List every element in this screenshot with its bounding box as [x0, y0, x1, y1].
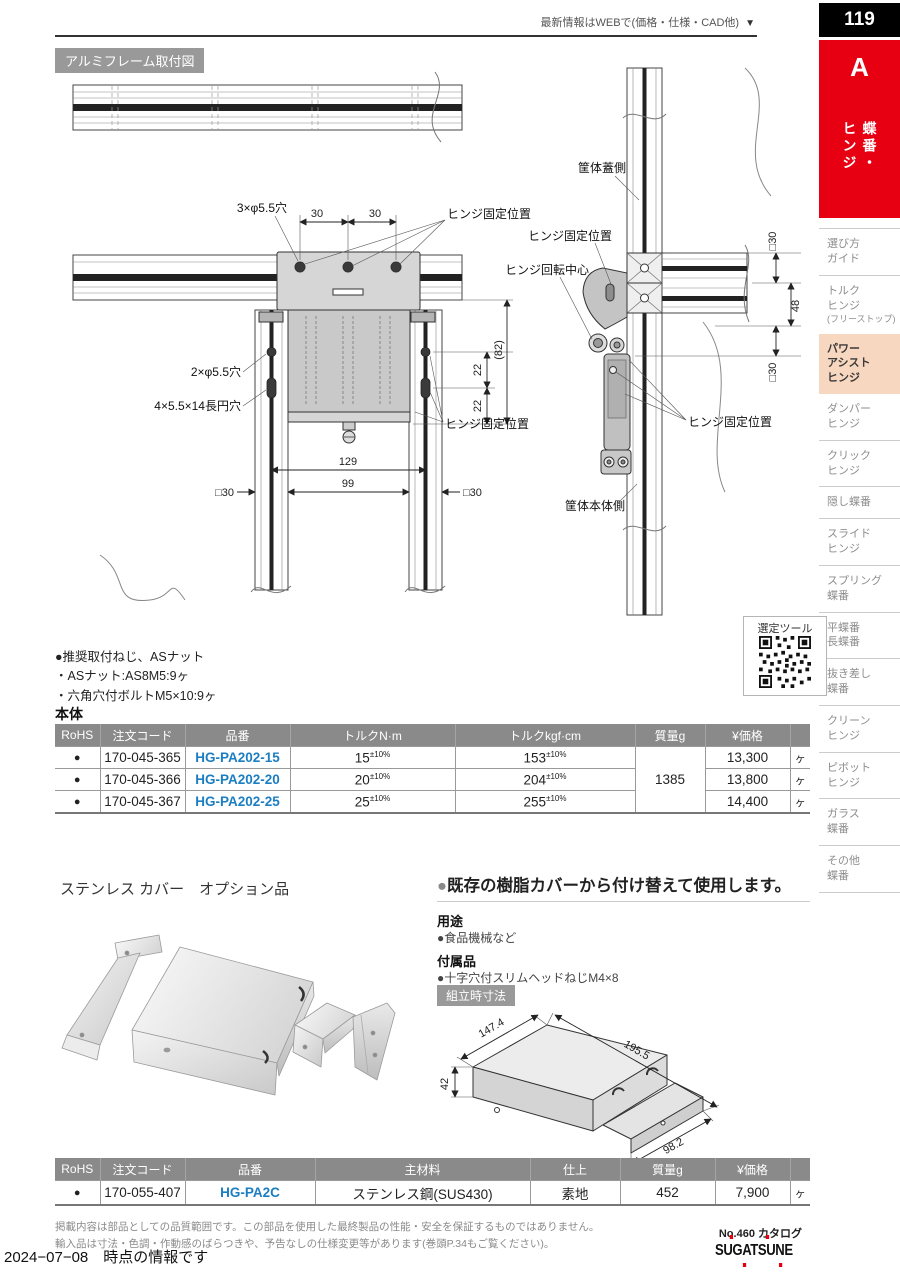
- table-row: ● 170-045-365 HG-PA202-15 15±10% 153±10%…: [55, 747, 810, 769]
- section-letter: A: [819, 52, 900, 83]
- notes-line-1: ・ASナット:AS8M5:9ヶ: [55, 667, 217, 686]
- dim-22-upper: 22: [472, 364, 484, 376]
- accessory-value: ●十字穴付スリムヘッドねじM4×8: [437, 969, 619, 986]
- dim-30-square-top: □30: [767, 232, 779, 251]
- header-rule: [55, 35, 757, 37]
- web-info-note: 最新情報はWEBで(価格・仕様・CAD他)▼: [55, 14, 755, 30]
- label-hinge-fix-top: ヒンジ固定位置: [447, 206, 531, 221]
- triangle-down-icon: ▼: [745, 18, 755, 29]
- order-code: 170-055-407: [100, 1181, 185, 1206]
- part-number-link[interactable]: HG-PA202-15: [185, 747, 290, 769]
- material-value: ステンレス鋼(SUS430): [315, 1181, 530, 1206]
- table-row: ● 170-055-407 HG-PA2C ステンレス鋼(SUS430) 素地 …: [55, 1181, 810, 1206]
- order-code: 170-045-367: [100, 791, 185, 814]
- dim-48: 48: [790, 300, 802, 312]
- sidebar-item-pivot-hinge[interactable]: ピボット ヒンジ: [819, 752, 900, 799]
- col-finish: 仕上: [530, 1158, 620, 1181]
- finish-value: 素地: [530, 1181, 620, 1206]
- sidebar-item-click-hinge[interactable]: クリック ヒンジ: [819, 440, 900, 487]
- mounting-notes: ●推奨取付ねじ、ASナット ・ASナット:AS8M5:9ヶ ・六角穴付ボルトM5…: [55, 648, 217, 706]
- col-unit: [790, 1158, 810, 1181]
- headline-rule: [437, 901, 810, 902]
- dim-42: 42: [439, 1078, 451, 1090]
- brand-block: No.460 カタログSUGATSUNE: [660, 1224, 810, 1260]
- selector-tool-label: 選定ツール: [744, 620, 826, 636]
- unit-value: ヶ: [790, 791, 810, 814]
- use-label: 用途: [437, 911, 463, 930]
- unit-value: ヶ: [790, 1181, 810, 1206]
- col-torque-kgf: トルクkgf·cm: [455, 724, 635, 747]
- part-number-link[interactable]: HG-PA2C: [185, 1181, 315, 1206]
- col-order-code: 注文コード: [100, 724, 185, 747]
- rohs-dot: ●: [55, 791, 100, 814]
- torque-kgf-value: 255±10%: [455, 791, 635, 814]
- torque-kgf-value: 204±10%: [455, 769, 635, 791]
- col-order-code: 注文コード: [100, 1158, 185, 1181]
- category-sidebar: 選び方 ガイド トルク ヒンジ(フリーストップ) パワー アシスト ヒンジ ダン…: [819, 228, 900, 893]
- col-material: 主材料: [315, 1158, 530, 1181]
- torque-nm-value: 25±10%: [290, 791, 455, 814]
- col-part-no: 品番: [185, 1158, 315, 1181]
- mass-value: 1385: [635, 747, 705, 814]
- cover-section-title: ステンレス カバー オプション品: [60, 878, 289, 899]
- label-oblong-hole: 4×5.5×14長円穴: [154, 398, 241, 413]
- col-rohs: RoHS: [55, 724, 100, 747]
- mounting-diagram: 30 30 3×φ5.5穴 ヒンジ固定位置 22 22 (82) 2×φ5.5穴…: [55, 60, 810, 635]
- section-tab-hinge[interactable]: A 蝶番・ ヒンジ: [819, 40, 900, 218]
- torque-kgf-value: 153±10%: [455, 747, 635, 769]
- assembled-dims-drawing: 147.4 195.5 42 98.2: [435, 1005, 725, 1160]
- dim-82: (82): [493, 340, 505, 360]
- table-header-row: RoHS 注文コード 品番 主材料 仕上 質量g ¥価格: [55, 1158, 810, 1181]
- dim-98-2: 98.2: [661, 1136, 686, 1157]
- dim-30-square-right: □30: [463, 487, 482, 499]
- col-mass: 質量g: [620, 1158, 715, 1181]
- part-number-link[interactable]: HG-PA202-20: [185, 769, 290, 791]
- dim-129: 129: [339, 456, 357, 468]
- col-torque-nm: トルクN·m: [290, 724, 455, 747]
- sidebar-item-flat-long-hinge[interactable]: 平蝶番 長蝶番: [819, 612, 900, 659]
- cover-product-image: [55, 915, 425, 1150]
- dim-30-square-left: □30: [215, 487, 234, 499]
- label-lid-side: 筐体蓋側: [578, 160, 626, 175]
- col-rohs: RoHS: [55, 1158, 100, 1181]
- label-2-holes: 2×φ5.5穴: [191, 364, 241, 379]
- col-part-no: 品番: [185, 724, 290, 747]
- main-table-title: 本体: [55, 704, 83, 724]
- price-value: 7,900: [715, 1181, 790, 1206]
- unit-value: ヶ: [790, 747, 810, 769]
- sidebar-item-glass-hinge[interactable]: ガラス 蝶番: [819, 798, 900, 845]
- sidebar-item-lift-off-hinge[interactable]: 抜き差し 蝶番: [819, 658, 900, 705]
- label-hinge-fix-lower: ヒンジ固定位置: [688, 414, 772, 429]
- dim-99: 99: [342, 478, 354, 490]
- mass-value: 452: [620, 1181, 715, 1206]
- order-code: 170-045-366: [100, 769, 185, 791]
- col-mass: 質量g: [635, 724, 705, 747]
- price-value: 13,800: [705, 769, 790, 791]
- torque-nm-value: 15±10%: [290, 747, 455, 769]
- selector-tool-box[interactable]: 選定ツール: [743, 616, 827, 696]
- sidebar-item-guide[interactable]: 選び方 ガイド: [819, 228, 900, 275]
- sidebar-item-spring-hinge[interactable]: スプリング 蝶番: [819, 565, 900, 612]
- main-product-table: RoHS 注文コード 品番 トルクN·m トルクkgf·cm 質量g ¥価格 ●…: [55, 724, 810, 814]
- sidebar-item-slide-hinge[interactable]: スライド ヒンジ: [819, 518, 900, 565]
- unit-value: ヶ: [790, 769, 810, 791]
- dim-147-4: 147.4: [477, 1016, 507, 1040]
- rohs-dot: ●: [55, 747, 100, 769]
- sidebar-item-other-hinge[interactable]: その他 蝶番: [819, 845, 900, 892]
- sugatsune-logo: SUGATSUNE: [715, 1242, 793, 1260]
- cover-headline: ●既存の樹脂カバーから付け替えて使用します。: [437, 872, 791, 896]
- notes-title: ●推奨取付ねじ、ASナット: [55, 648, 217, 667]
- rohs-dot: ●: [55, 769, 100, 791]
- col-unit: [790, 724, 810, 747]
- assembled-dims-label: 組立時寸法: [437, 985, 515, 1006]
- col-price: ¥価格: [715, 1158, 790, 1181]
- label-hinge-fix-side: ヒンジ固定位置: [445, 416, 529, 431]
- page-number: 119: [819, 3, 900, 37]
- rohs-dot: ●: [55, 1181, 100, 1206]
- qr-code-icon: [759, 636, 811, 688]
- dim-22-lower: 22: [472, 400, 484, 412]
- disclaimer-1: 掲載内容は部品としての品質範囲です。この部品を使用した最終製品の性能・安全を保証…: [55, 1219, 599, 1234]
- order-code: 170-045-365: [100, 747, 185, 769]
- dim-30-square-bottom: □30: [767, 363, 779, 382]
- sidebar-item-damper-hinge[interactable]: ダンパー ヒンジ: [819, 394, 900, 440]
- label-3-holes: 3×φ5.5穴: [237, 200, 287, 215]
- price-value: 13,300: [705, 747, 790, 769]
- sidebar-item-concealed-hinge[interactable]: 隠し蝶番: [819, 486, 900, 518]
- sidebar-item-torque-hinge[interactable]: トルク ヒンジ(フリーストップ): [819, 275, 900, 334]
- sidebar-item-power-assist-hinge[interactable]: パワー アシスト ヒンジ: [819, 334, 900, 395]
- use-value: ●食品機械など: [437, 929, 516, 946]
- torque-nm-value: 20±10%: [290, 769, 455, 791]
- label-body-side: 筐体本体側: [565, 498, 625, 513]
- label-hinge-fix-upper: ヒンジ固定位置: [528, 228, 612, 243]
- dim-30-left: 30: [311, 208, 323, 220]
- date-note: 2024−07−08 時点の情報です: [4, 1246, 208, 1267]
- accessory-label: 付属品: [437, 951, 476, 970]
- cover-product-table: RoHS 注文コード 品番 主材料 仕上 質量g ¥価格 ● 170-055-4…: [55, 1158, 810, 1206]
- sidebar-item-clean-hinge[interactable]: クリーン ヒンジ: [819, 705, 900, 752]
- part-number-link[interactable]: HG-PA202-25: [185, 791, 290, 814]
- col-price: ¥価格: [705, 724, 790, 747]
- table-header-row: RoHS 注文コード 品番 トルクN·m トルクkgf·cm 質量g ¥価格: [55, 724, 810, 747]
- dim-30-right: 30: [369, 208, 381, 220]
- section-title-vertical: 蝶番・ ヒンジ: [840, 91, 880, 201]
- price-value: 14,400: [705, 791, 790, 814]
- label-rotation-center: ヒンジ回転中心: [505, 262, 589, 277]
